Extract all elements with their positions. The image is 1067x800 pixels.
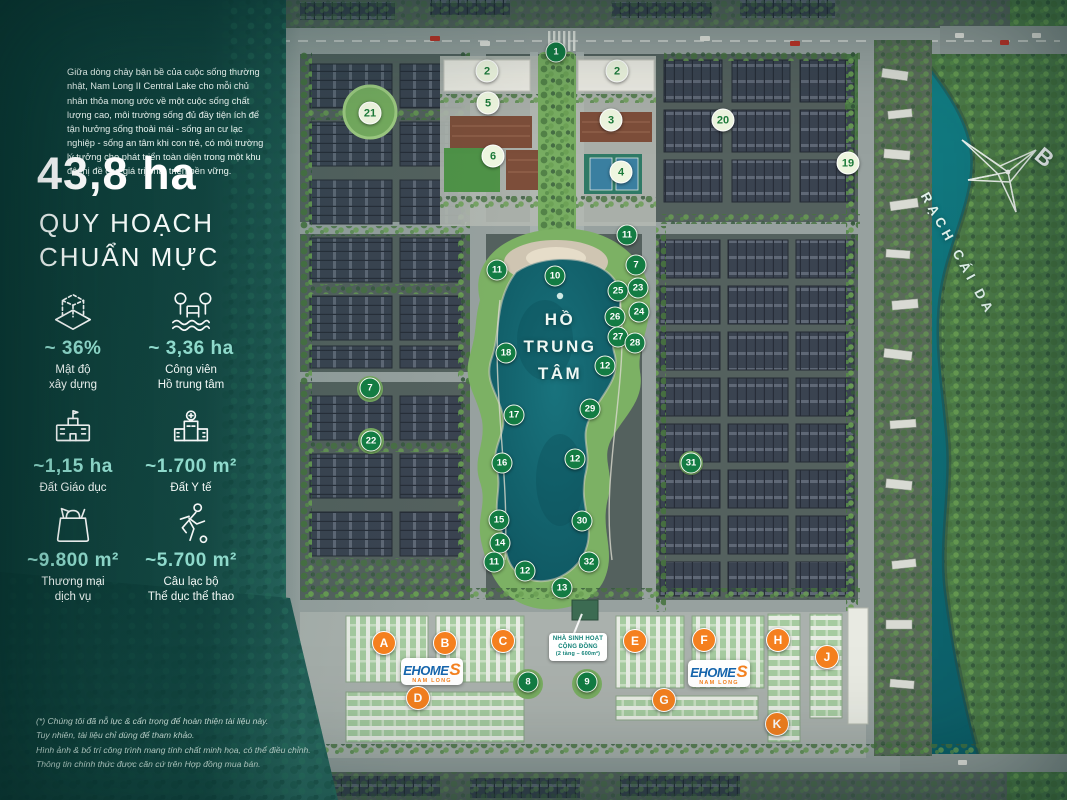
plot-markers-layer: 1101118171615141112137221172523262427281…	[0, 0, 1067, 800]
plot-marker-e-42[interactable]: E	[623, 629, 647, 653]
plot-marker-29-22[interactable]: 29	[580, 399, 601, 420]
plot-marker-8-27[interactable]: 8	[518, 672, 539, 693]
plot-marker-h-45[interactable]: H	[766, 628, 790, 652]
plot-marker-16-5[interactable]: 16	[492, 453, 513, 474]
plot-marker-17-4[interactable]: 17	[504, 405, 525, 426]
plot-marker-10-1[interactable]: 10	[545, 266, 566, 287]
plot-marker-23-16[interactable]: 23	[628, 278, 649, 299]
plot-marker-7-14[interactable]: 7	[626, 255, 647, 276]
plot-marker-12-21[interactable]: 12	[595, 356, 616, 377]
plot-marker-g-44[interactable]: G	[652, 688, 676, 712]
plot-marker-30-24[interactable]: 30	[572, 511, 593, 532]
plot-marker-20-36[interactable]: 20	[712, 109, 735, 132]
plot-marker-c-40[interactable]: C	[491, 629, 515, 653]
plot-marker-f-43[interactable]: F	[692, 628, 716, 652]
plot-marker-2-32[interactable]: 2	[606, 60, 629, 83]
plot-marker-3-33[interactable]: 3	[600, 109, 623, 132]
plot-marker-2-29[interactable]: 2	[476, 60, 499, 83]
plot-marker-31-26[interactable]: 31	[681, 453, 702, 474]
plot-marker-b-39[interactable]: B	[433, 631, 457, 655]
plot-marker-11-13[interactable]: 11	[617, 225, 638, 246]
plot-marker-6-31[interactable]: 6	[482, 145, 505, 168]
masterplan-scene: Giữa dòng chảy bận bề của cuộc sống thườ…	[0, 0, 1067, 800]
plot-marker-9-28[interactable]: 9	[577, 672, 598, 693]
plot-marker-14-7[interactable]: 14	[490, 533, 511, 554]
plot-marker-4-34[interactable]: 4	[610, 161, 633, 184]
plot-marker-15-6[interactable]: 15	[489, 510, 510, 531]
plot-marker-22-12[interactable]: 22	[361, 431, 382, 452]
plot-marker-25-15[interactable]: 25	[608, 281, 629, 302]
plot-marker-d-41[interactable]: D	[406, 686, 430, 710]
plot-marker-11-2[interactable]: 11	[487, 260, 508, 281]
plot-marker-a-38[interactable]: A	[372, 631, 396, 655]
plot-marker-24-18[interactable]: 24	[629, 302, 650, 323]
plot-marker-19-37[interactable]: 19	[837, 152, 860, 175]
plot-marker-18-3[interactable]: 18	[496, 343, 517, 364]
plot-marker-32-25[interactable]: 32	[579, 552, 600, 573]
plot-marker-28-20[interactable]: 28	[625, 333, 646, 354]
plot-marker-12-9[interactable]: 12	[515, 561, 536, 582]
plot-marker-11-8[interactable]: 11	[484, 552, 505, 573]
plot-marker-7-11[interactable]: 7	[360, 378, 381, 399]
plot-marker-j-46[interactable]: J	[815, 645, 839, 669]
plot-marker-21-35[interactable]: 21	[359, 102, 382, 125]
plot-marker-26-17[interactable]: 26	[605, 307, 626, 328]
plot-marker-5-30[interactable]: 5	[477, 92, 500, 115]
plot-marker-1-0[interactable]: 1	[546, 42, 567, 63]
plot-marker-12-23[interactable]: 12	[565, 449, 586, 470]
plot-marker-13-10[interactable]: 13	[552, 578, 573, 599]
plot-marker-k-47[interactable]: K	[765, 712, 789, 736]
